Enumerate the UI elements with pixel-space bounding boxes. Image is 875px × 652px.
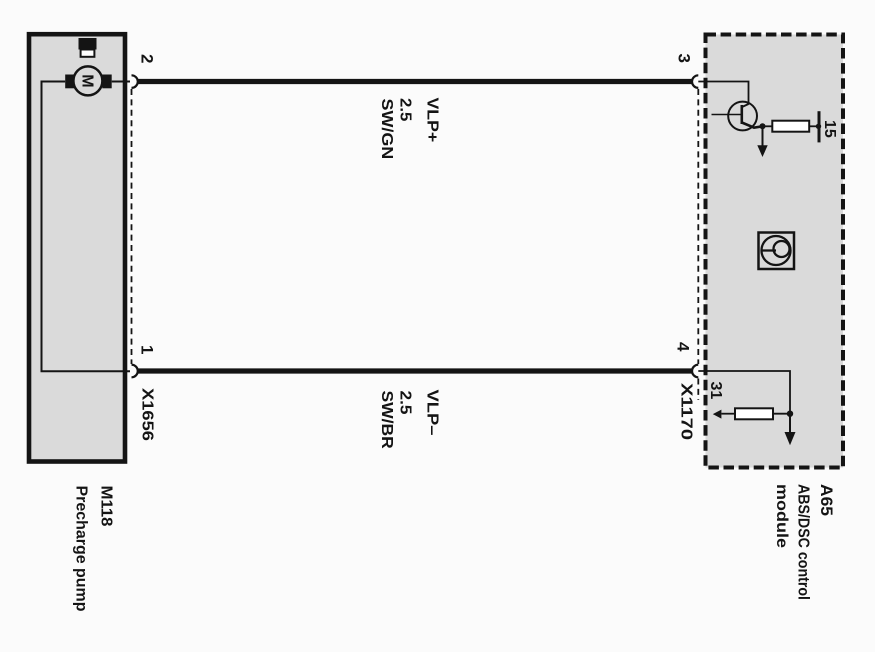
svg-text:2: 2: [138, 54, 157, 63]
svg-text:VLP–: VLP–: [424, 390, 441, 436]
svg-text:SW/GN: SW/GN: [378, 99, 395, 160]
svg-text:2.5: 2.5: [397, 391, 414, 415]
svg-text:SW/BR: SW/BR: [378, 391, 395, 450]
svg-text:X1656: X1656: [139, 388, 156, 441]
svg-text:ABS/DSC control: ABS/DSC control: [795, 484, 812, 600]
svg-text:4: 4: [674, 342, 693, 352]
svg-text:module: module: [773, 484, 790, 548]
svg-text:1: 1: [138, 345, 157, 354]
svg-text:31: 31: [707, 382, 724, 400]
svg-text:M: M: [79, 74, 96, 87]
svg-text:15: 15: [821, 120, 838, 138]
svg-text:M118: M118: [98, 486, 115, 527]
svg-text:A65: A65: [817, 484, 836, 516]
svg-text:X1170: X1170: [678, 383, 695, 440]
svg-text:VLP+: VLP+: [424, 98, 441, 143]
svg-text:2.5: 2.5: [397, 98, 414, 121]
svg-text:3: 3: [675, 54, 694, 63]
svg-text:Precharge pump: Precharge pump: [73, 486, 90, 612]
